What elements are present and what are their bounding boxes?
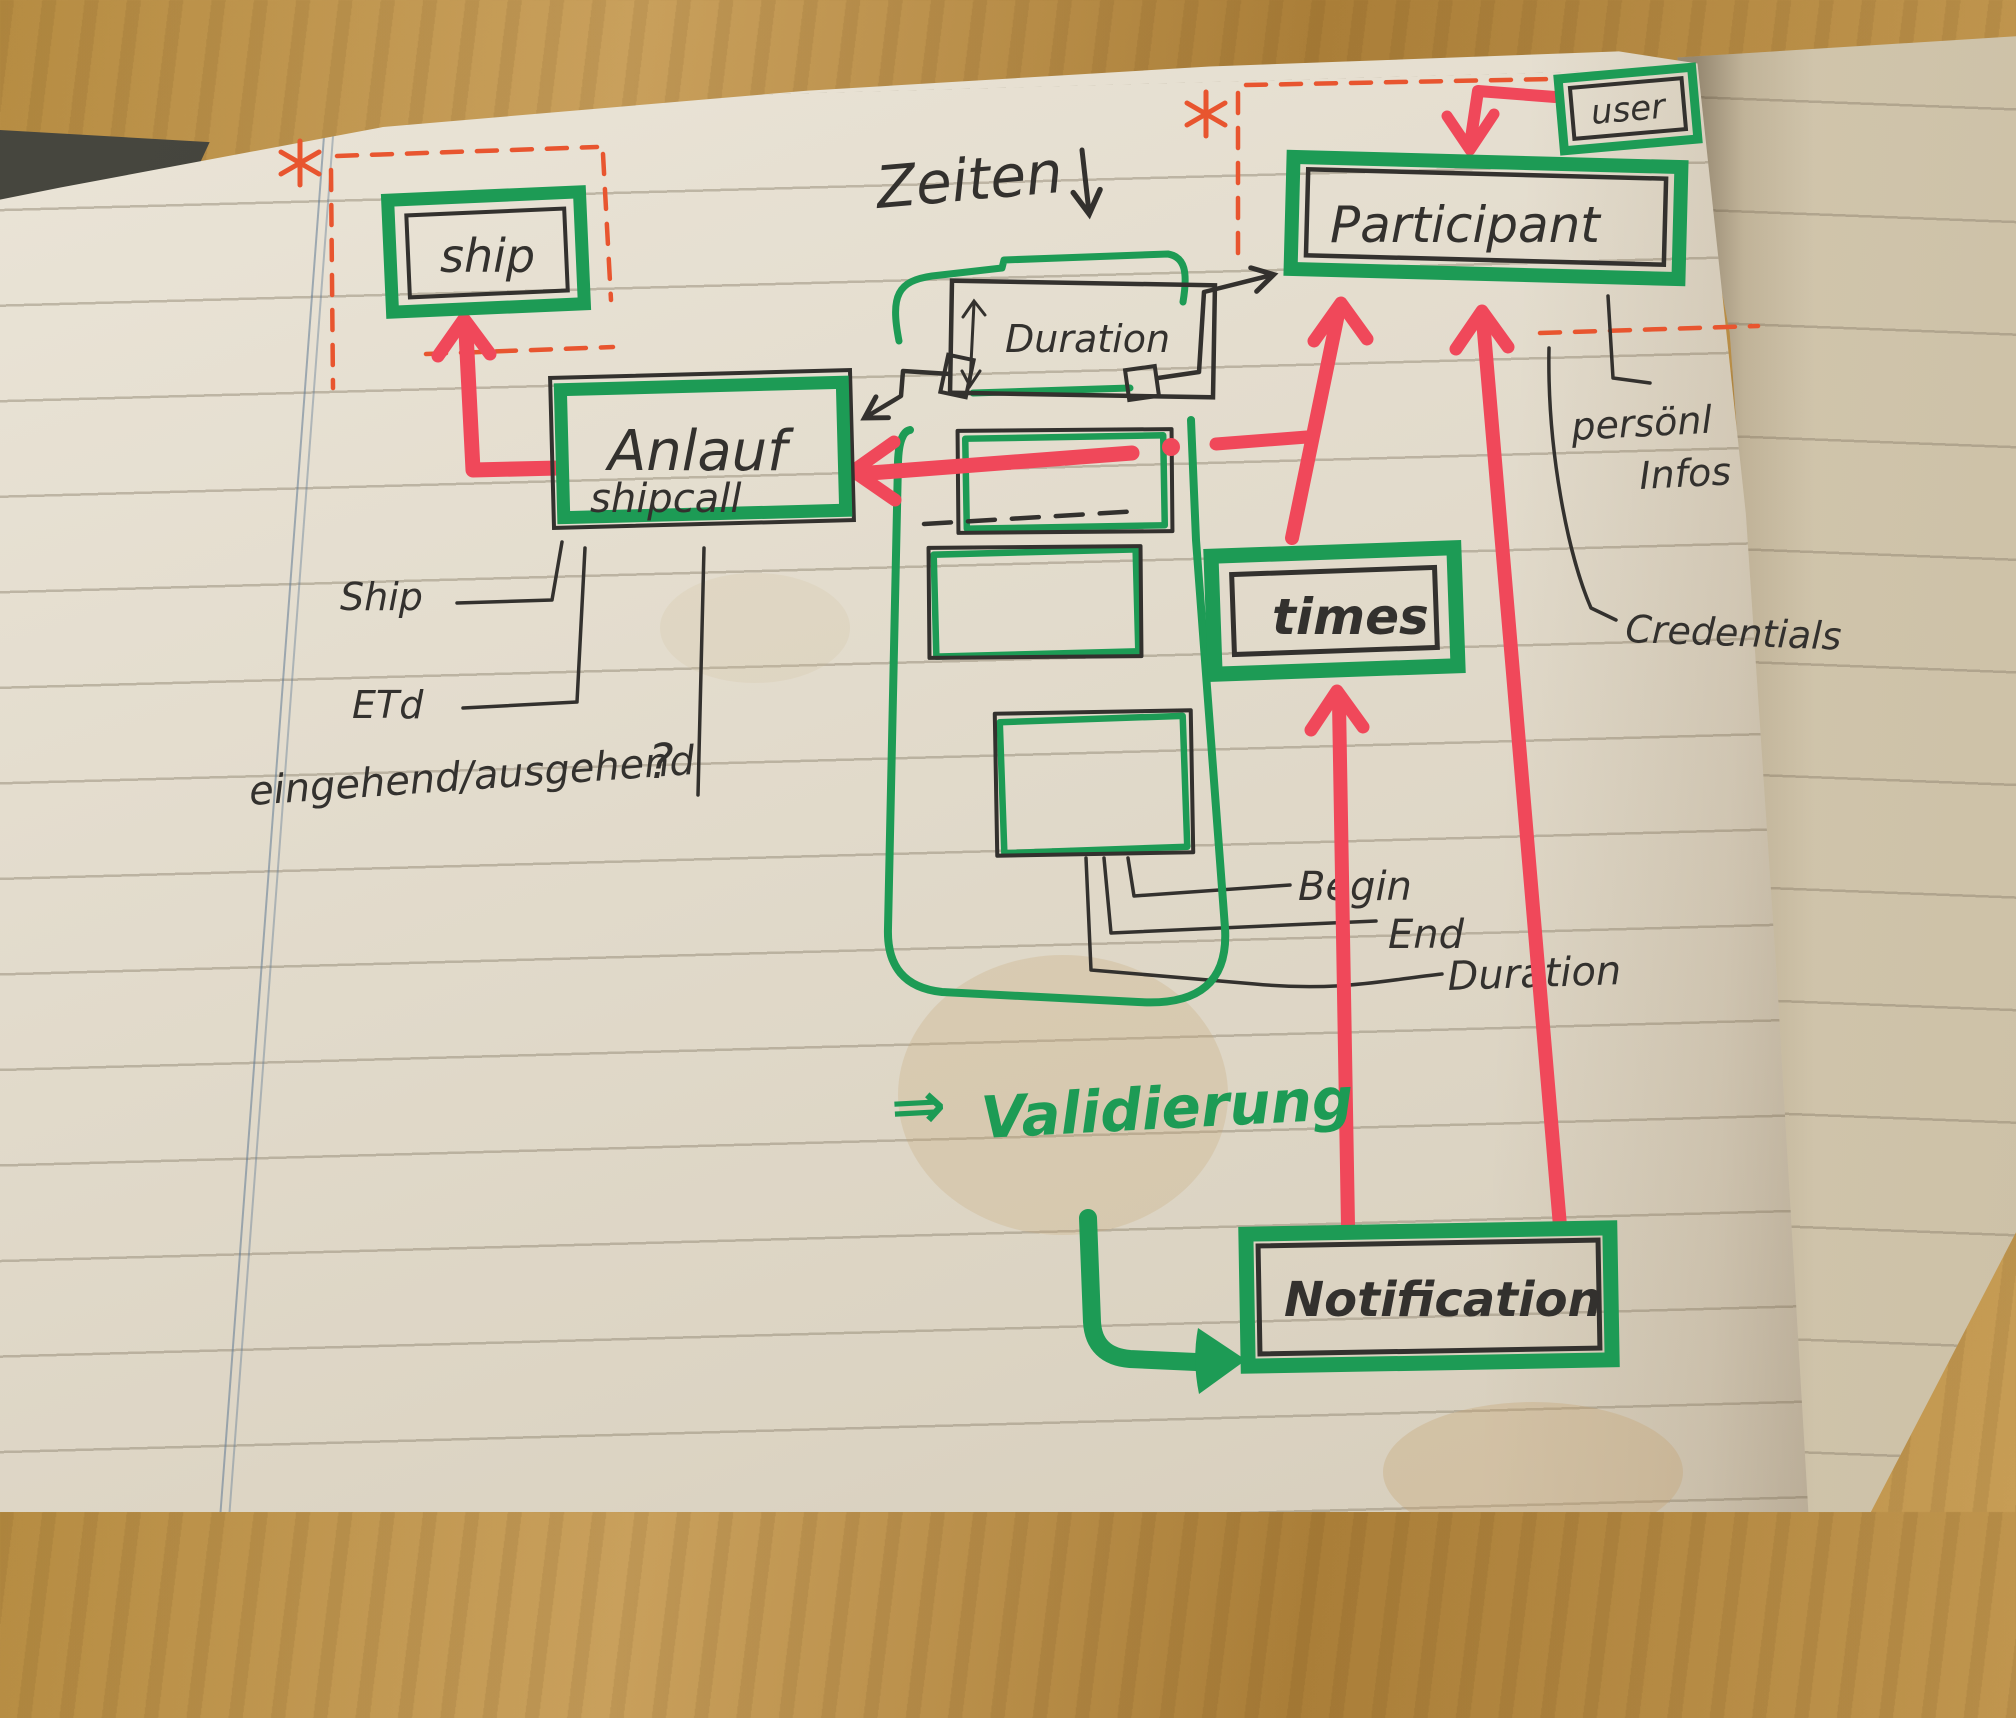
entity-user: user [1558,67,1698,150]
duration-box-label: Duration [1005,317,1170,361]
validation-arrow-glyph: ⇒ [889,1066,948,1146]
personal-info-label-1: persönl [1569,398,1713,449]
personal-info-label-2: Infos [1638,449,1732,498]
green-hook-arrow [1088,1218,1246,1394]
entity-ship-label: ship [440,229,535,283]
entity-participant: Participant [1291,157,1682,279]
begin-line [1128,858,1290,896]
personal-info-line [1608,296,1650,383]
sketch-box-2 [929,546,1142,658]
notebook-photo: Ship ETd eingehend/ausgehend ? persönl I… [0,0,2016,1512]
arrow-to-anlauf-shaft [870,453,1132,473]
attribute-connectors [457,296,1650,987]
credentials-line [1549,348,1616,620]
asterisk-icon [281,141,319,185]
entity-anlauf-label: Anlauf [605,419,794,484]
arrow-to-anlauf-dot [1162,438,1180,456]
duration-box: Duration [940,281,1215,400]
entity-anlauf: Anlauf shipcall [550,370,854,528]
question-mark-label: ? [648,734,673,790]
arrow-to-anlauf-dash [1216,437,1307,444]
arrow-times-to-participant-shaft [1292,314,1338,538]
hand-drawn-diagram: Ship ETd eingehend/ausgehend ? persönl I… [0,0,2016,1512]
end-label: End [1388,912,1465,958]
zeiten-label: Zeiten [871,138,1065,222]
credentials-label: Credentials [1625,607,1843,659]
etd-line [463,548,585,708]
asterisk-icon [1187,92,1225,136]
entity-times: times [1211,548,1458,674]
entity-notification-label: Notification [1284,1272,1602,1328]
entity-anlauf-sublabel: shipcall [590,476,741,522]
entity-participant-label: Participant [1330,196,1602,254]
down-arrow-icon [1082,150,1089,212]
entity-times-label: times [1272,588,1429,646]
in-out-label: eingehend/ausgehend [247,738,696,815]
arrow-duration-to-anlauf [866,371,950,417]
sketch-box-3 [995,710,1193,855]
arrow-notification-to-participant-shaft [1483,320,1560,1226]
ship-ref-label: Ship [340,575,423,619]
begin-label: Begin [1298,864,1412,910]
arrow-notification-to-times-shaft [1339,702,1348,1226]
entity-ship: ship [388,192,585,312]
ship-ref-line [457,542,562,603]
entity-user-label: user [1589,86,1668,132]
etd-label: ETd [352,683,424,727]
vertical-extent-arrow-icon [962,301,985,386]
entity-notification: Notification [1246,1228,1612,1366]
